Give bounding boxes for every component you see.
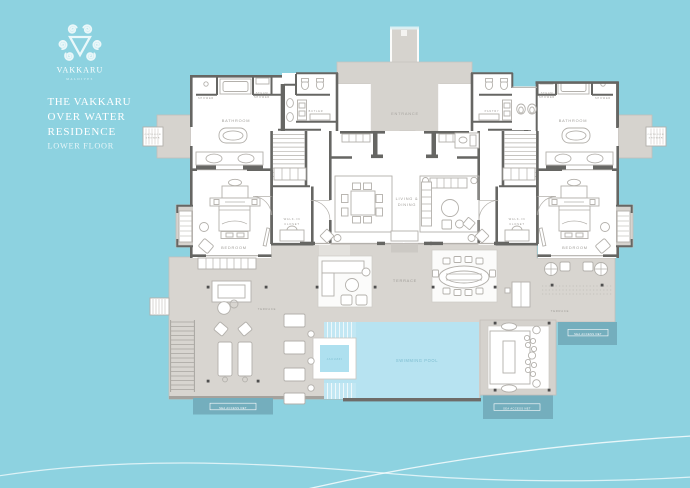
svg-text:SEA ACCESS NET: SEA ACCESS NET — [574, 332, 602, 336]
svg-text:OVER WATER: OVER WATER — [48, 111, 126, 123]
svg-text:SHOWER: SHOWER — [649, 138, 664, 140]
svg-text:BEDROOM: BEDROOM — [221, 245, 247, 250]
svg-text:ENTRANCE: ENTRANCE — [391, 111, 419, 116]
svg-text:SEA ACCESS NET: SEA ACCESS NET — [503, 406, 531, 410]
svg-text:TERRACE: TERRACE — [258, 307, 276, 311]
svg-text:SWIMMING POOL: SWIMMING POOL — [396, 358, 438, 363]
svg-text:JACUZZI: JACUZZI — [327, 357, 343, 361]
svg-text:PANTRY: PANTRY — [485, 110, 500, 113]
svg-text:WALK-IN: WALK-IN — [284, 217, 301, 221]
svg-text:SHOWER: SHOWER — [539, 96, 555, 99]
svg-text:BEDROOM: BEDROOM — [562, 245, 588, 250]
svg-text:VAKKARU: VAKKARU — [57, 66, 104, 75]
svg-text:BATHROOM: BATHROOM — [222, 118, 251, 123]
svg-text:SHOWER: SHOWER — [595, 97, 611, 100]
svg-text:CLOSET: CLOSET — [284, 222, 300, 226]
svg-text:STEAM: STEAM — [541, 92, 554, 95]
svg-text:CLOSET: CLOSET — [509, 222, 525, 226]
svg-text:OUTDOOR: OUTDOOR — [648, 134, 665, 136]
svg-text:DINING: DINING — [398, 202, 416, 207]
svg-text:SHOWER: SHOWER — [146, 138, 161, 140]
svg-text:RESIDENCE: RESIDENCE — [48, 126, 117, 138]
svg-text:SHOWER: SHOWER — [254, 96, 270, 99]
svg-text:SHOWER: SHOWER — [198, 97, 214, 100]
svg-text:MALDIVES: MALDIVES — [66, 77, 94, 81]
svg-text:BUTLER: BUTLER — [309, 110, 324, 113]
svg-text:BATHROOM: BATHROOM — [559, 118, 588, 123]
svg-text:TERRACE: TERRACE — [393, 278, 417, 283]
svg-text:LIVING &: LIVING & — [396, 196, 419, 201]
svg-text:WALK-IN: WALK-IN — [509, 217, 526, 221]
svg-text:TERRACE: TERRACE — [551, 309, 569, 313]
svg-text:SEA ACCESS NET: SEA ACCESS NET — [219, 406, 247, 410]
svg-text:STEAM: STEAM — [256, 92, 269, 95]
svg-text:LOWER FLOOR: LOWER FLOOR — [48, 142, 114, 151]
svg-text:OUTDOOR: OUTDOOR — [145, 134, 162, 136]
svg-text:THE VAKKARU: THE VAKKARU — [48, 96, 132, 108]
